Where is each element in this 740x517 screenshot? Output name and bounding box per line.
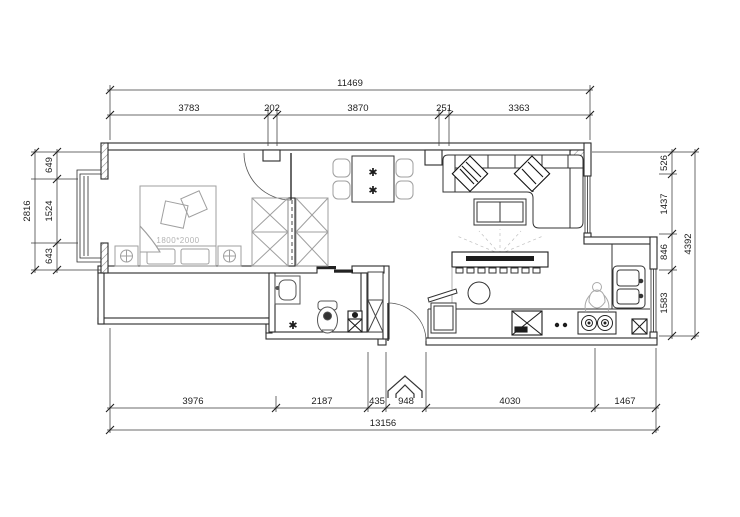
cook-figure (585, 283, 609, 313)
appliance-open-lid (428, 289, 457, 333)
wardrobe-hall (296, 198, 328, 266)
dim-right-seg: 1437 (659, 193, 670, 214)
knob (555, 323, 559, 327)
dim-left-seg: 643 (44, 248, 55, 264)
dim-bottom-seg: 2187 (311, 396, 332, 407)
dim-right-seg: 846 (659, 244, 670, 260)
floor-plan-page: 1800*2000 ✱ ✱ (0, 0, 740, 517)
dim-bottom-seg: 3976 (182, 396, 203, 407)
dim-top-seg: 251 (436, 103, 452, 114)
bed (140, 186, 216, 266)
bathroom-sliding-door (317, 266, 353, 273)
dim-top-seg: 3870 (347, 103, 368, 114)
round-stool (468, 282, 490, 304)
nightstand-right (218, 246, 241, 266)
bath-cabinet (348, 311, 362, 332)
dim-left-seg: 649 (44, 157, 55, 173)
bed-size-label: 1800*2000 (156, 236, 199, 245)
wall-notch-column (263, 150, 280, 161)
coffee-table (474, 199, 526, 225)
bathroom-left-wall (269, 273, 275, 332)
plant-icon: ✱ (368, 167, 377, 179)
plant-icon: ✱ (368, 185, 377, 197)
floor-plan-canvas: 1800*2000 ✱ ✱ (0, 0, 740, 517)
dim-bottom-seg: 948 (398, 396, 414, 407)
plant-icon: ✱ (288, 320, 297, 332)
dim-top-seg: 3363 (508, 103, 529, 114)
bay-window (77, 170, 101, 262)
living-room (443, 155, 583, 273)
gas-stove (578, 312, 616, 334)
tv-stand (452, 229, 548, 273)
dim-right-seg: 526 (659, 155, 670, 171)
bedroom: 1800*2000 (115, 186, 328, 266)
tv-screen (466, 256, 534, 261)
toilet (318, 301, 338, 333)
living-room-window (585, 176, 590, 233)
hall-closet (368, 272, 383, 332)
dim-bottom-seg: 4030 (499, 396, 520, 407)
dim-right-total: 4392 (683, 233, 694, 254)
kitchen-window (651, 269, 656, 332)
washing-machine (512, 311, 542, 335)
nightstand-left (115, 246, 138, 266)
wall-notch-column (425, 150, 442, 165)
dim-left-seg: 1524 (44, 200, 55, 221)
dim-right-seg: 1583 (659, 292, 670, 313)
dim-top-total: 11469 (337, 78, 363, 89)
wardrobe-bedroom (252, 198, 288, 266)
dim-left-total: 2816 (22, 200, 33, 221)
dim-top-seg: 202 (264, 103, 280, 114)
washbasin (275, 276, 300, 304)
kitchen-sink (613, 266, 645, 308)
dimension-chain-left: 649 1524 643 2816 (22, 148, 101, 274)
dining-area: ✱ ✱ (333, 156, 413, 202)
entrance-door (388, 303, 426, 341)
dimension-chain-top: 11469 3783 202 3870 251 3363 (106, 78, 594, 146)
dim-bottom-seg: 1467 (614, 396, 635, 407)
floor-drain (632, 319, 647, 334)
dim-bottom-total: 13156 (370, 418, 396, 429)
knob (563, 323, 567, 327)
dim-bottom-seg: 435 (369, 396, 385, 407)
entrance-arrow-icon (388, 376, 422, 398)
dim-top-seg: 3783 (178, 103, 199, 114)
